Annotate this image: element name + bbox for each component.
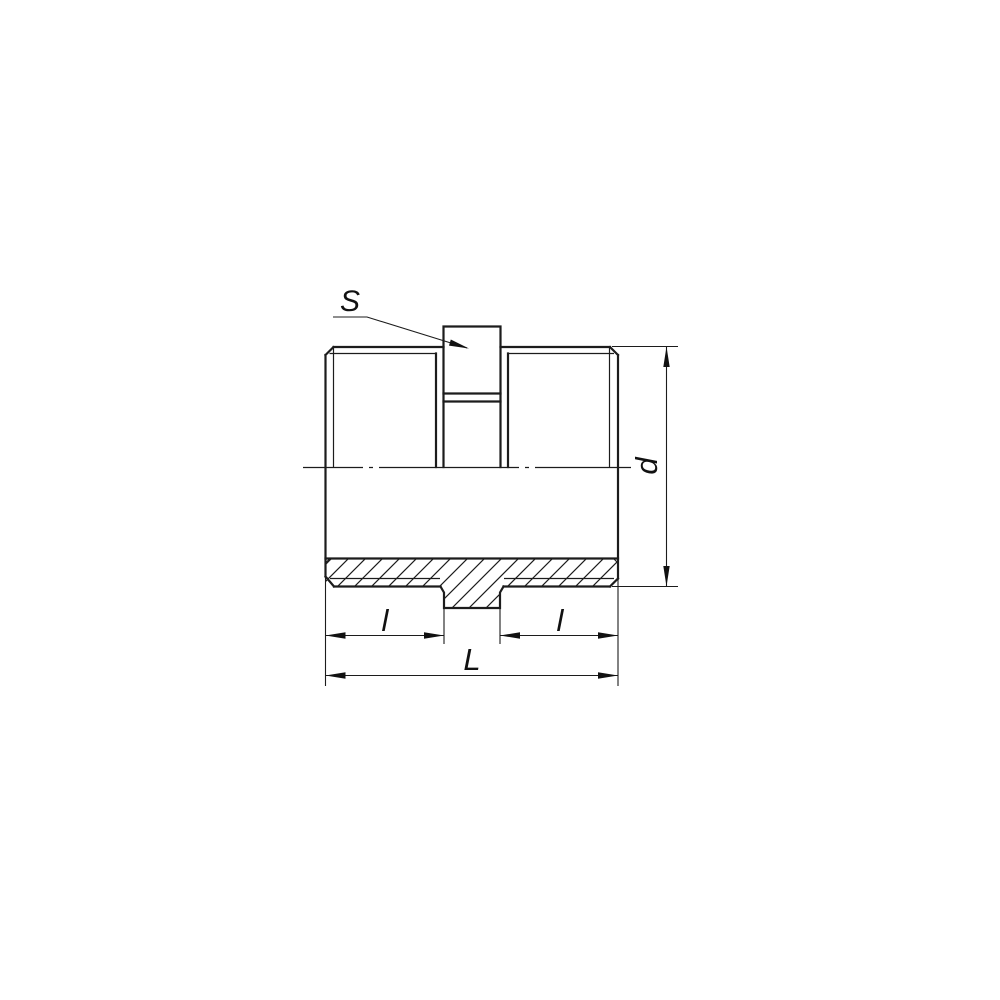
dim-L-arrow-right bbox=[598, 672, 618, 678]
dimension-L: L bbox=[326, 642, 619, 679]
dimension-d: d bbox=[612, 347, 678, 587]
dimension-l-left: l bbox=[326, 603, 445, 639]
dim-L-label: L bbox=[463, 642, 480, 677]
s-leader-arrow bbox=[449, 340, 469, 349]
s-leader-line bbox=[333, 317, 467, 348]
dim-d-arrow-up bbox=[663, 347, 669, 368]
callout-S: S bbox=[333, 285, 469, 349]
hex-chamfer-lines bbox=[444, 394, 501, 402]
hex-side-edges bbox=[436, 354, 508, 468]
end-chamfer-edges bbox=[334, 347, 610, 467]
nipple-body-outline bbox=[326, 347, 619, 608]
dim-d-label: d bbox=[629, 456, 664, 475]
dim-l-left-arrow-right bbox=[424, 632, 444, 638]
thread-lines bbox=[326, 347, 619, 579]
dim-l-right-arrow-left bbox=[500, 632, 520, 638]
dim-L-arrow-left bbox=[326, 672, 346, 678]
pipe-nipple-technical-drawing: d l l L S bbox=[0, 0, 1000, 1000]
dimension-l-right: l bbox=[500, 603, 618, 639]
dim-l-left-label: l bbox=[382, 603, 390, 638]
dim-d-arrow-down bbox=[663, 566, 669, 587]
dim-l-right-label: l bbox=[557, 603, 565, 638]
drawing-canvas: d l l L S bbox=[0, 0, 1000, 1000]
dim-l-right-arrow-right bbox=[598, 632, 618, 638]
hex-boss bbox=[436, 327, 508, 468]
section-hatching bbox=[275, 550, 663, 615]
s-label: S bbox=[340, 285, 360, 318]
dim-l-left-arrow-left bbox=[326, 632, 346, 638]
